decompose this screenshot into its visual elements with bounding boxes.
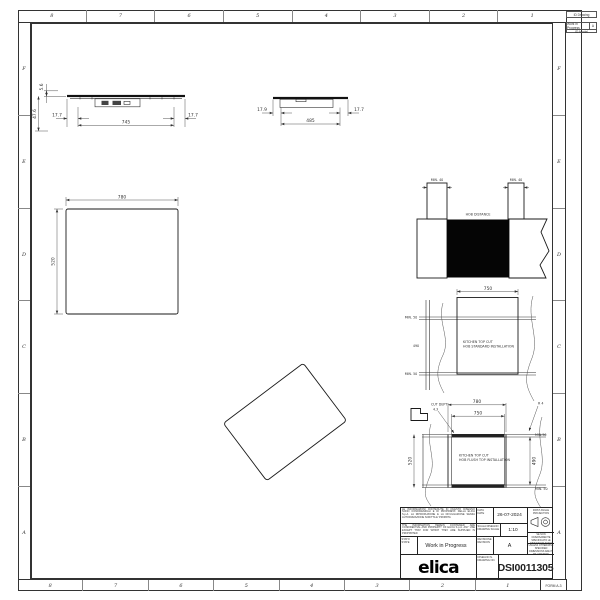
dim-total-height: 47.6 [32,109,38,119]
hob-body-side [280,99,333,107]
cut-depth-profile-icon [411,409,428,421]
state-cell: STATO STATE Work in Progress [401,537,477,555]
drawing-number-cell: DISEGNO N. DRAWING NO. DSI0011305 [477,555,554,580]
view-flush-cut: CUT DEPT 4.3 780 750 R 4 520 MIN.50 490 … [408,399,548,508]
recess-step-front [452,484,505,487]
dim-cut-depth: 490 [413,344,419,348]
view-wall-clearance: MIN. 40 MIN. 40 HOB DISTANCE [417,178,549,278]
wall-right [508,183,524,219]
dim-left-offset: 17.9 [257,107,267,113]
dim-min-back: MIN. 50 [405,316,418,320]
caption-line2: HOB FLUSH TOP INSTALLATION [459,458,511,462]
glass-side-profile [273,97,348,99]
cut-dept-label: CUT DEPT [431,403,448,407]
legal-notice-en: THE INFORMATION HEREIN CONTAINED ARE CON… [401,524,477,537]
dim-right-offset: 17.7 [188,113,198,119]
hob-outline-rotated [223,363,346,481]
dim-min-right: MIN. 40 [510,178,523,182]
caption-line1: KITCHEN TOP CUT [463,340,494,344]
label-drawing-scale: DRAWING SCALE [478,528,500,531]
units-note-en: UNLESS OTHERWISE SPECIFIED DIMENSIONS AR… [528,544,554,555]
dim-min-front: MIN. 50 [535,487,548,491]
dim-recess-width: 780 [473,399,482,405]
break-line [425,424,432,506]
caption-line1: KITCHEN TOP CUT [459,454,490,458]
corner-radius-label: R 4 [538,402,543,406]
dim-recess-depth: 520 [408,457,414,466]
drawing-sheet: 8 7 6 5 4 3 2 1 8 7 6 5 4 3 2 1 FORM A-3… [0,0,600,600]
date-value: 26-07-2024 [492,508,527,523]
dim-min-left: MIN. 40 [431,178,444,182]
break-line [527,296,535,401]
countertop-left [417,219,447,278]
scale-cell: SCALA DISEGNO DRAWING SCALE 1:10 [477,524,528,537]
caption-line2: HOB STANDARD INSTALLATION [463,345,514,349]
dim-min-front: MIN. 50 [405,372,418,376]
revision-cell: REVISIONE REVISION A [477,537,528,555]
legal-notice-it: LE INFORMAZIONI CONTENUTE IN QUESTO DISE… [401,508,477,524]
view-front-section: 5.6 47.6 17.7 17.7 745 [32,83,198,131]
revision-value: A [492,537,527,554]
logo-cell: elica [401,555,477,580]
title-block: LE INFORMAZIONI CONTENUTE IN QUESTO DISE… [400,507,553,579]
hob-outline-top [66,209,178,314]
view-top: 780 520 [51,194,179,314]
dim-left-offset: 17.7 [52,113,62,119]
date-cell: DATA DATE 26-07-2024 [477,508,528,524]
dim-right-offset: 17.7 [354,107,364,113]
elica-logo: elica [418,558,459,578]
label-date: DATE [478,512,493,515]
view-isometric [223,363,346,481]
scale-value: 1:10 [499,524,527,536]
break-line [438,303,446,393]
state-value: Work in Progress [416,537,476,554]
projection-label: FIRST ANGLE PROJECTION [528,508,554,515]
drawing-number: DSI0011305 [497,555,554,580]
view-depth-section: 17.9 17.7 485 [257,97,364,126]
view-standard-cut: 750 MIN. 50 490 MIN. 50 KITCHEN TOP CUT … [405,286,536,401]
dim-cut-depth: 490 [532,457,538,466]
wall-left [427,183,447,219]
label-drawing-no: DRAWING NO. [478,559,498,562]
dim-cut-width: 750 [474,411,483,417]
projection-cell: FIRST ANGLE PROJECTION [528,508,554,533]
dim-width: 780 [118,194,127,200]
hob-black-top [447,220,509,278]
hob-distance-label: HOB DISTANCE [466,213,491,217]
dim-body-width: 745 [122,120,131,126]
label-revision: REVISION [478,541,493,544]
countertop-right [509,219,549,278]
glass-top-profile [67,95,185,97]
recess-step-back [452,434,505,437]
cut-dept-value: 4.3 [433,408,438,412]
dim-depth: 520 [51,257,57,266]
units-note-it: SE NON DIVERSAMENTE SPECIFICATO LE DIMEN… [528,533,554,544]
label-state: STATE [402,541,417,544]
first-angle-projection-icon [528,515,554,529]
dim-body-depth: 485 [306,118,315,124]
dim-min-back: MIN.50 [535,433,547,437]
dim-cut-width: 750 [484,286,493,292]
dim-glass-thickness: 5.6 [39,83,45,90]
cutout-rect [457,298,518,375]
